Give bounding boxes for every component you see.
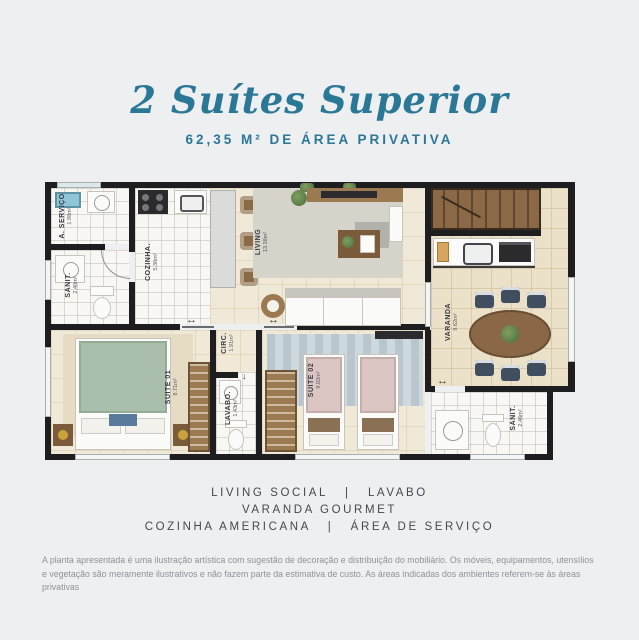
sofa-back (285, 288, 401, 298)
sliding-door-arrow-icon: ↔ (437, 376, 448, 387)
window (45, 260, 51, 300)
burner-icon (156, 194, 163, 201)
stove (138, 190, 168, 214)
dining-chair (527, 360, 546, 376)
wall-segment (216, 372, 238, 378)
bed-blanket (360, 357, 396, 413)
wall-segment (129, 182, 135, 252)
window (568, 277, 575, 362)
wardrobe (265, 370, 297, 452)
sliding-door-leaf (182, 326, 214, 328)
lavabo-sink (219, 380, 241, 404)
wardrobe (188, 362, 210, 452)
dining-chair (501, 287, 520, 303)
page-subtitle: 62,35 M² DE ÁREA PRIVATIVA (0, 132, 639, 147)
staircase (431, 188, 541, 230)
wall-segment (425, 330, 431, 392)
dining-chair (501, 365, 520, 381)
sliding-door-leaf (264, 326, 294, 328)
bed-blanket (79, 341, 167, 413)
toilet-tank (482, 414, 504, 422)
shelf-unit (389, 206, 403, 242)
toilet-tank (90, 286, 114, 296)
lamp-icon (267, 300, 279, 312)
window (45, 347, 51, 417)
window (75, 454, 170, 460)
page-title: 2 Suítes Superior (0, 78, 639, 122)
dining-chair (527, 292, 546, 308)
feature-list: LIVING SOCIAL | LAVABO VARANDA GOURMET C… (0, 485, 639, 536)
burner-icon (156, 204, 163, 211)
sink-basin-icon (224, 386, 238, 400)
wall-segment (45, 182, 51, 460)
tv-icon (321, 191, 377, 198)
plant-icon (291, 190, 307, 206)
dining-chair (475, 360, 494, 376)
laundry-tank (55, 192, 81, 208)
washing-machine (87, 191, 115, 213)
toilet-bowl (228, 429, 244, 450)
sanit2-sink-counter (435, 410, 469, 450)
toilet-bowl (485, 423, 501, 447)
toilet-tank (225, 420, 247, 428)
window (470, 454, 525, 460)
shower-head-icon (63, 262, 79, 278)
disclaimer-text: A planta apresentada é uma ilustração ar… (42, 554, 598, 595)
toilet-bowl (93, 297, 111, 319)
gourmet-sink-icon (463, 243, 493, 265)
pillow (363, 434, 393, 446)
header: 2 Suítes Superior 62,35 M² DE ÁREA PRIVA… (0, 78, 639, 147)
feature-line: LIVING SOCIAL | LAVABO (0, 485, 639, 502)
room-circ (216, 330, 256, 378)
cutting-board (437, 242, 449, 262)
side-table (261, 294, 285, 318)
tray (360, 235, 375, 253)
accent-pillow (308, 418, 340, 432)
burner-icon (142, 204, 149, 211)
plant-icon (342, 236, 354, 248)
wall-segment (210, 330, 216, 454)
wall-segment (45, 324, 180, 330)
stair-break-line (441, 196, 481, 218)
sink-basin-icon (180, 195, 204, 212)
coffee-island (338, 230, 380, 258)
feature-line: VARANDA GOURMET (0, 502, 639, 519)
wall-segment (547, 386, 553, 460)
bed-blanket (306, 357, 342, 413)
shower-box (55, 255, 85, 283)
sofa (285, 288, 401, 326)
kitchen-sink-counter (174, 190, 207, 214)
wall-segment (45, 244, 105, 250)
wall-segment (129, 282, 135, 330)
sliding-door-arrow-icon: ↔ (186, 315, 197, 326)
sofa-seam (323, 298, 324, 326)
dining-table (469, 310, 551, 358)
wall-segment (256, 330, 262, 454)
window (295, 454, 400, 460)
nightstand (53, 424, 73, 446)
double-bed (75, 338, 171, 450)
floorplan: ↔ ↔ ↔ ↓ (45, 182, 575, 460)
breakfast-bar-counter (210, 190, 236, 288)
tv-bench (307, 188, 403, 202)
door-arrow-icon: ↓ (242, 372, 247, 381)
glass-door (425, 282, 431, 327)
washer-door-icon (94, 195, 110, 211)
wall-shelf (375, 331, 423, 339)
marketing-floorplan-page: 2 Suítes Superior 62,35 M² DE ÁREA PRIVA… (0, 0, 639, 640)
sink-basin-icon (443, 421, 463, 441)
single-bed (357, 354, 399, 450)
single-bed (303, 354, 345, 450)
gourmet-counter (433, 238, 535, 268)
accent-pillow (362, 418, 394, 432)
burner-icon (142, 194, 149, 201)
grill-icon (499, 242, 531, 262)
accent-pillow (109, 414, 137, 426)
dining-chair (475, 292, 494, 308)
sofa-seam (362, 298, 363, 326)
feature-line: COZINHA AMERICANA | ÁREA DE SERVIÇO (0, 519, 639, 536)
knob-icon (58, 430, 68, 440)
window (57, 182, 101, 188)
wall-segment (431, 230, 541, 236)
pillow (309, 434, 339, 446)
wall-segment (465, 386, 575, 392)
knob-icon (178, 430, 188, 440)
plant-icon (501, 325, 519, 343)
